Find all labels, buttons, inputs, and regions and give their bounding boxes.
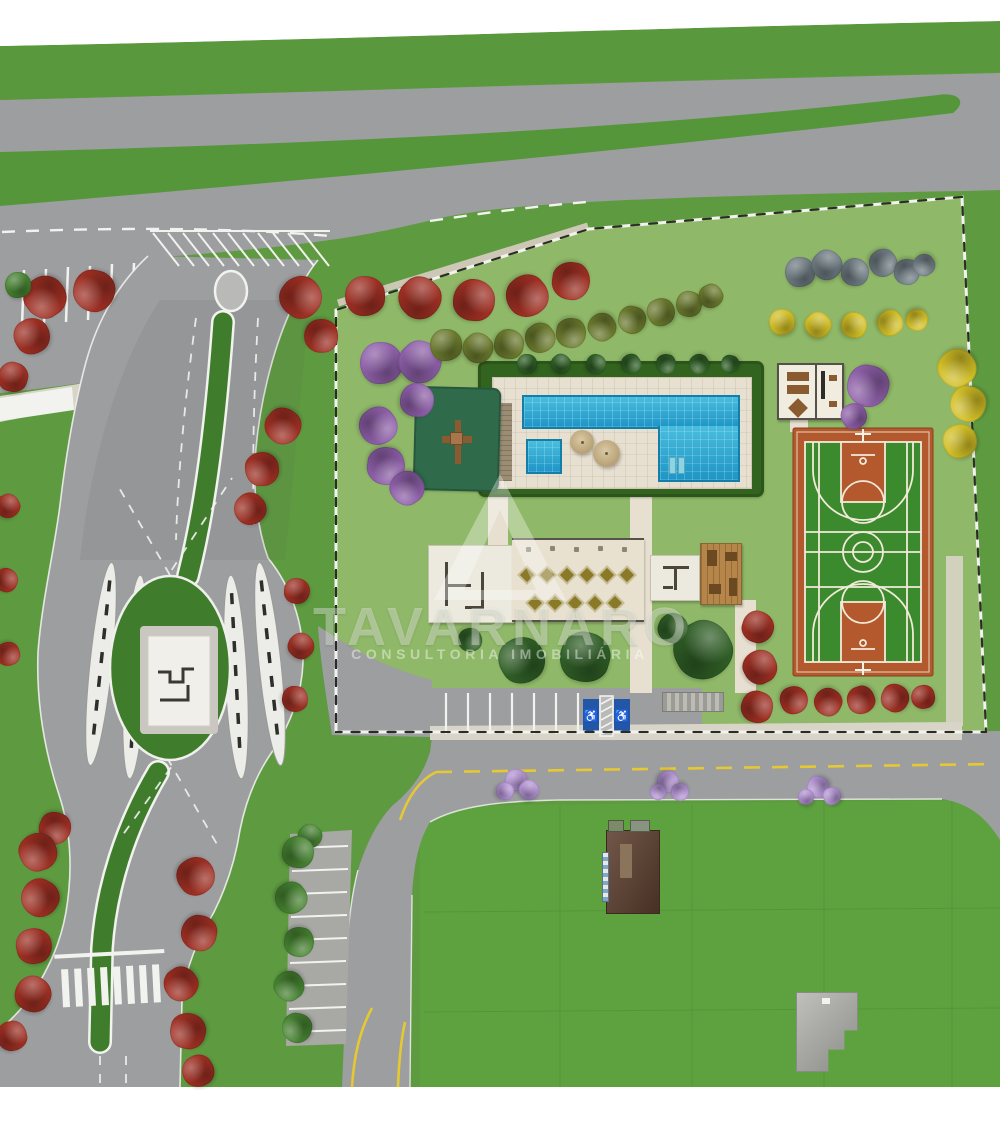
lawn-building-roof-box [608,820,624,832]
pool-lounger [669,457,676,474]
outdoor-fitness-station [777,363,844,420]
lawn-building-roof-box [630,820,650,832]
lawn-building-chimney [822,998,830,1004]
pool-lounger [678,457,685,474]
kids-pool [526,439,562,474]
clubhouse-terrace [512,538,644,622]
playground-equipment [450,432,463,445]
site-plan-canvas: ♿ ♿ [0,0,1000,1137]
sun-umbrella [593,440,620,467]
structures-layer [0,0,1000,1137]
clubhouse [425,535,745,627]
lawn-building-brown [606,830,660,914]
sun-umbrella [570,430,594,454]
clubhouse-wood-deck [700,543,742,605]
pergola [662,692,724,712]
clubhouse-left-wing [428,545,514,623]
swimming-pool-lap [522,395,740,429]
lawn-building-door [620,844,632,878]
clubhouse-right-wing [650,555,700,601]
lawn-building-gray [796,992,858,1072]
lawn-building-ladder [602,852,609,902]
